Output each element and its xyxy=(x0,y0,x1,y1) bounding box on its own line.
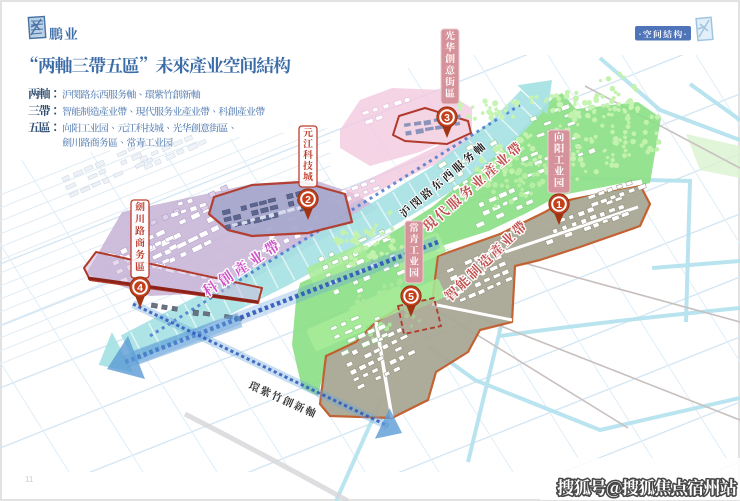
svg-text:3: 3 xyxy=(444,112,450,124)
svg-text:5: 5 xyxy=(408,291,414,303)
svg-text:1: 1 xyxy=(556,199,562,211)
svg-text:11: 11 xyxy=(25,475,34,484)
svg-text:2: 2 xyxy=(305,194,311,206)
svg-text:4: 4 xyxy=(137,282,143,294)
